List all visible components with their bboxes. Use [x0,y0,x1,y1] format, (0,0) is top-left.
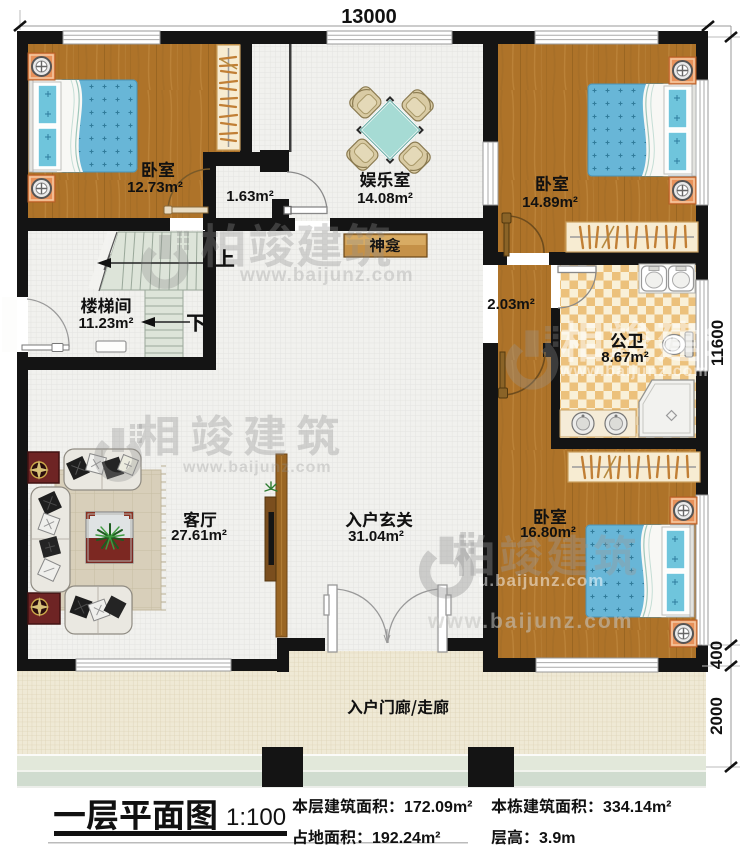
svg-text:31.04m²: 31.04m² [348,528,404,545]
svg-text:www.baijunz.com: www.baijunz.com [239,265,414,286]
svg-text:1.63m²: 1.63m² [226,188,274,205]
svg-text:16.80m²: 16.80m² [520,524,576,541]
svg-text:12.73m²: 12.73m² [127,179,183,196]
svg-text:8.67m²: 8.67m² [601,349,649,366]
svg-text:172.09m²: 172.09m² [404,799,473,816]
svg-text:1:100: 1:100 [226,804,286,831]
svg-text:www.baijunz.com: www.baijunz.com [427,610,633,633]
svg-text:2.03m²: 2.03m² [487,296,535,313]
svg-text:334.14m²: 334.14m² [603,799,672,816]
svg-text:13000: 13000 [341,6,397,28]
svg-text:3.9m: 3.9m [539,830,575,847]
svg-text:www.baijunz.com: www.baijunz.com [182,459,332,476]
svg-text:400: 400 [707,641,726,669]
svg-text:11600: 11600 [708,320,727,366]
svg-text:14.89m²: 14.89m² [522,194,578,211]
svg-text:14.08m²: 14.08m² [357,190,413,207]
svg-text:27.61m²: 27.61m² [171,527,227,544]
svg-text:192.24m²: 192.24m² [372,830,441,847]
svg-text:11.23m²: 11.23m² [78,315,133,332]
svg-text:2000: 2000 [707,697,726,735]
svg-text:u.baijunz.com: u.baijunz.com [478,571,604,590]
